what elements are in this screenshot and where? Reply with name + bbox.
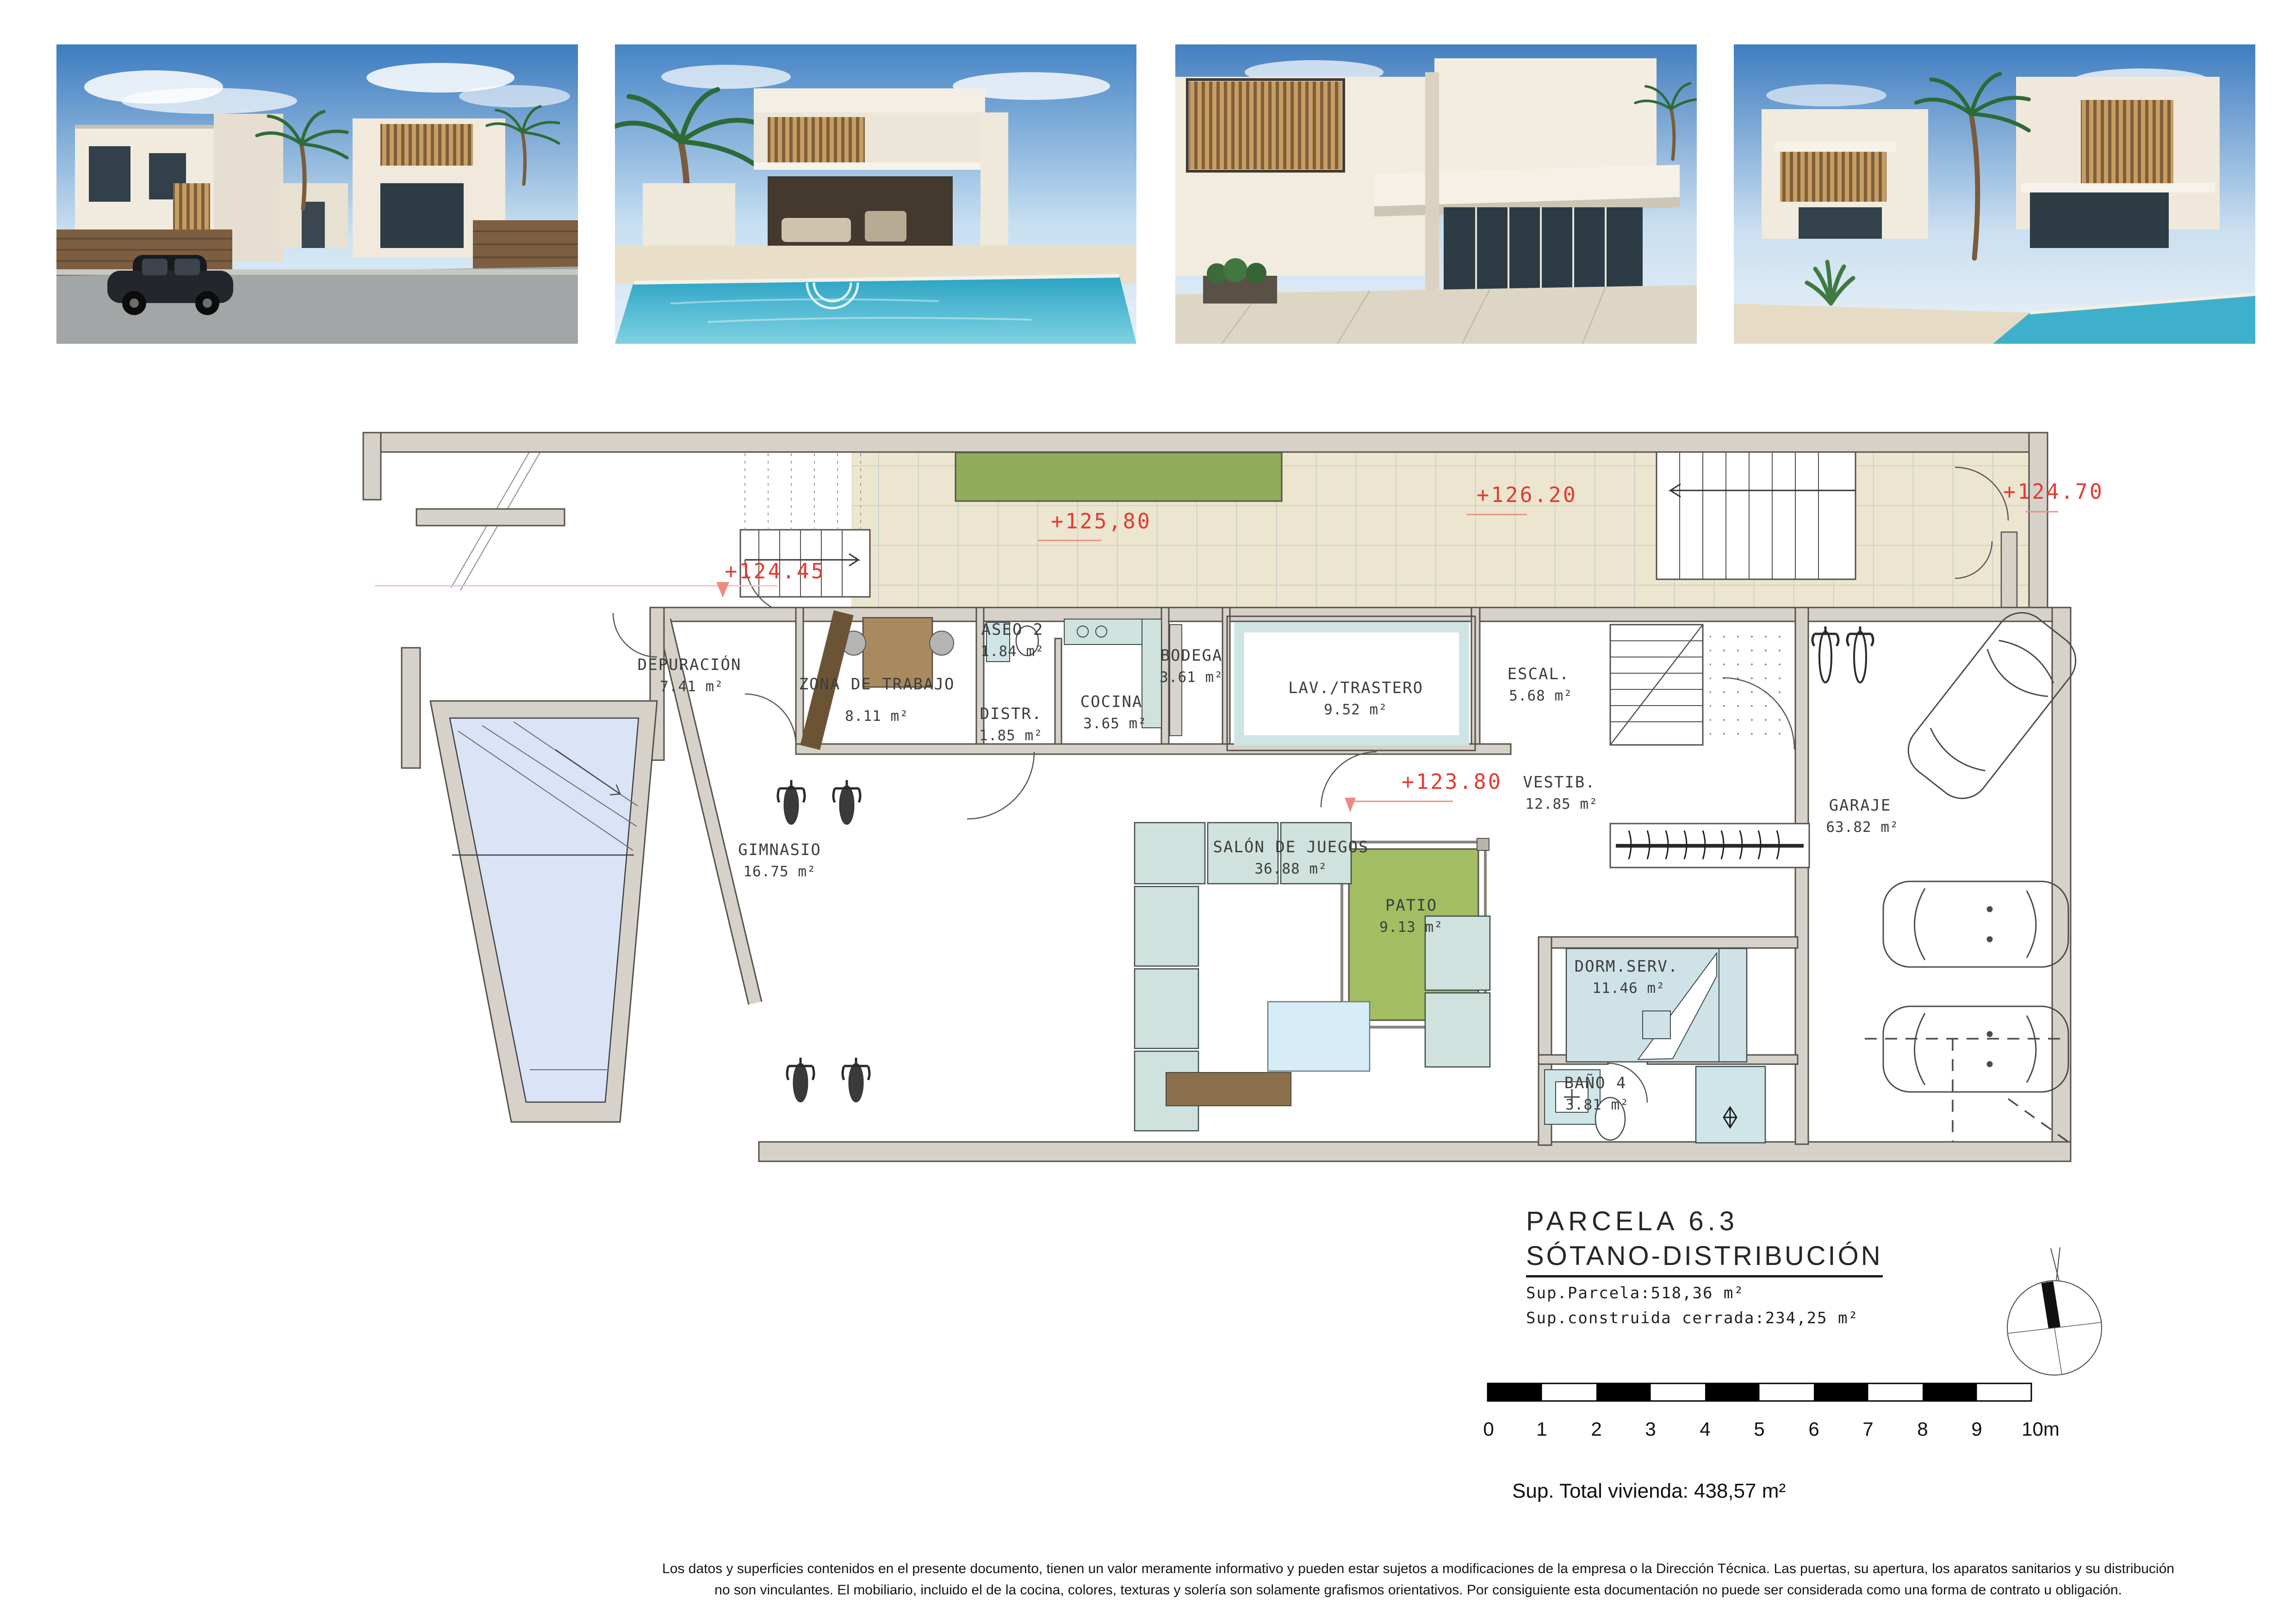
room-label: BODEGA: [1160, 646, 1223, 665]
page-title: PARCELA 6.3: [1526, 1206, 1883, 1237]
stair-12445: [451, 449, 870, 608]
garage-vehicles: [1812, 602, 2086, 1142]
svg-text:12.85 m²: 12.85 m²: [1525, 796, 1598, 812]
north-arrow-icon: [1990, 1245, 2119, 1402]
room-label: PATIO: [1385, 896, 1437, 915]
sup-parcela: Sup.Parcela:518,36 m²: [1526, 1284, 1883, 1302]
villa-left: [1762, 109, 1928, 239]
svg-text:10m: 10m: [2022, 1418, 2060, 1440]
svg-text:5: 5: [1754, 1418, 1764, 1440]
car-parked: [1883, 881, 2068, 967]
svg-text:3.65 m²: 3.65 m²: [1083, 715, 1147, 732]
svg-text:3.61 m²: 3.61 m²: [1160, 669, 1223, 686]
svg-text:0: 0: [1483, 1418, 1494, 1440]
gym-equipment: [778, 780, 869, 1102]
svg-text:4: 4: [1700, 1418, 1710, 1440]
svg-text:1: 1: [1536, 1418, 1547, 1440]
disclaimer: Los datos y superficies contenidos en el…: [532, 1558, 2296, 1601]
scale-bar-numbers: 0 1 2 3 4 5 6 7 8 9 10m: [1483, 1418, 2060, 1440]
pool: [430, 701, 657, 1122]
pool: [615, 276, 1136, 344]
room-label: ESCAL.: [1508, 665, 1570, 683]
svg-text:8.11 m²: 8.11 m²: [845, 708, 909, 725]
svg-text:5.68 m²: 5.68 m²: [1509, 688, 1573, 704]
coffee-table: [1268, 1002, 1370, 1071]
room-label: DEPURACIÓN: [638, 655, 742, 674]
elevation-label: +125,80: [1051, 509, 1152, 533]
elevation-label: +124.70: [2003, 479, 2104, 504]
svg-text:1.84 m²: 1.84 m²: [980, 643, 1044, 660]
disclaimer-line-2: no son vinculantes. El mobiliario, inclu…: [532, 1580, 2296, 1601]
svg-text:8: 8: [1917, 1418, 1928, 1440]
svg-text:7.41 m²: 7.41 m²: [660, 678, 724, 695]
car-parked: [1883, 1006, 2068, 1092]
svg-text:9: 9: [1971, 1418, 1982, 1440]
svg-text:6: 6: [1808, 1418, 1819, 1440]
title-block: PARCELA 6.3 SÓTANO-DISTRIBUCIÓN Sup.Parc…: [1526, 1206, 1883, 1327]
svg-text:63.82 m²: 63.82 m²: [1826, 819, 1899, 836]
svg-text:2: 2: [1591, 1418, 1601, 1440]
room-label: ZONA DE TRABAJO: [799, 675, 955, 694]
stair-top-right: [1657, 445, 1855, 579]
disclaimer-line-1: Los datos y superficies contenidos en el…: [532, 1558, 2296, 1580]
villa-photo-garden: [1734, 44, 2255, 344]
total-area-text: Sup. Total vivienda: 438,57 m²: [1512, 1480, 1786, 1503]
villa-volumes: [1175, 58, 1680, 295]
entry-porch: [1948, 452, 2031, 607]
villa-photo-pool: [615, 44, 1136, 344]
villa-photo-street: [56, 44, 578, 344]
svg-text:11.46 m²: 11.46 m²: [1592, 980, 1665, 997]
room-label: LAV./TRASTERO: [1288, 679, 1423, 697]
villa-photo-corner: [1175, 44, 1697, 344]
svg-text:9.52 m²: 9.52 m²: [1324, 701, 1388, 718]
svg-text:1.85 m²: 1.85 m²: [979, 727, 1043, 744]
elevation-label: +124.45: [725, 559, 825, 583]
room-label: SALÓN DE JUEGOS: [1213, 837, 1369, 856]
room-label: GIMNASIO: [738, 841, 821, 859]
room-label: ASEO 2: [981, 620, 1044, 639]
svg-text:3.81 m²: 3.81 m²: [1565, 1097, 1629, 1113]
svg-text:7: 7: [1862, 1418, 1873, 1440]
scale-bar-segments: [1488, 1383, 2031, 1401]
motorbikes: [1812, 626, 1873, 682]
svg-text:16.75 m²: 16.75 m²: [743, 863, 816, 880]
media-console: [1166, 1072, 1291, 1106]
room-label: BAÑO 4: [1564, 1074, 1627, 1092]
elevation-label: +123.80: [1402, 769, 1502, 794]
stair-interior: [1610, 625, 1791, 745]
room-label: COCINA: [1080, 693, 1143, 711]
page-subtitle: SÓTANO-DISTRIBUCIÓN: [1526, 1240, 1883, 1277]
villa-right: [2016, 77, 2220, 248]
svg-text:36.88 m²: 36.88 m²: [1254, 861, 1327, 877]
svg-text:3: 3: [1645, 1418, 1656, 1440]
planter-green: [956, 452, 1282, 501]
svg-text:9.13 m²: 9.13 m²: [1379, 919, 1443, 936]
elevation-label: +126.20: [1477, 483, 1577, 507]
room-label: GARAJE: [1829, 796, 1892, 815]
shower: [1696, 1066, 1765, 1143]
room-label: VESTIB.: [1523, 773, 1595, 792]
sup-construida: Sup.construida cerrada:234,25 m²: [1526, 1309, 1883, 1327]
room-label: DISTR.: [980, 705, 1043, 723]
room-label: DORM.SERV.: [1575, 957, 1679, 976]
floor-plan: DEPURACIÓN 7.41 m² ZONA DE TRABAJO 8.11 …: [361, 426, 2272, 1194]
